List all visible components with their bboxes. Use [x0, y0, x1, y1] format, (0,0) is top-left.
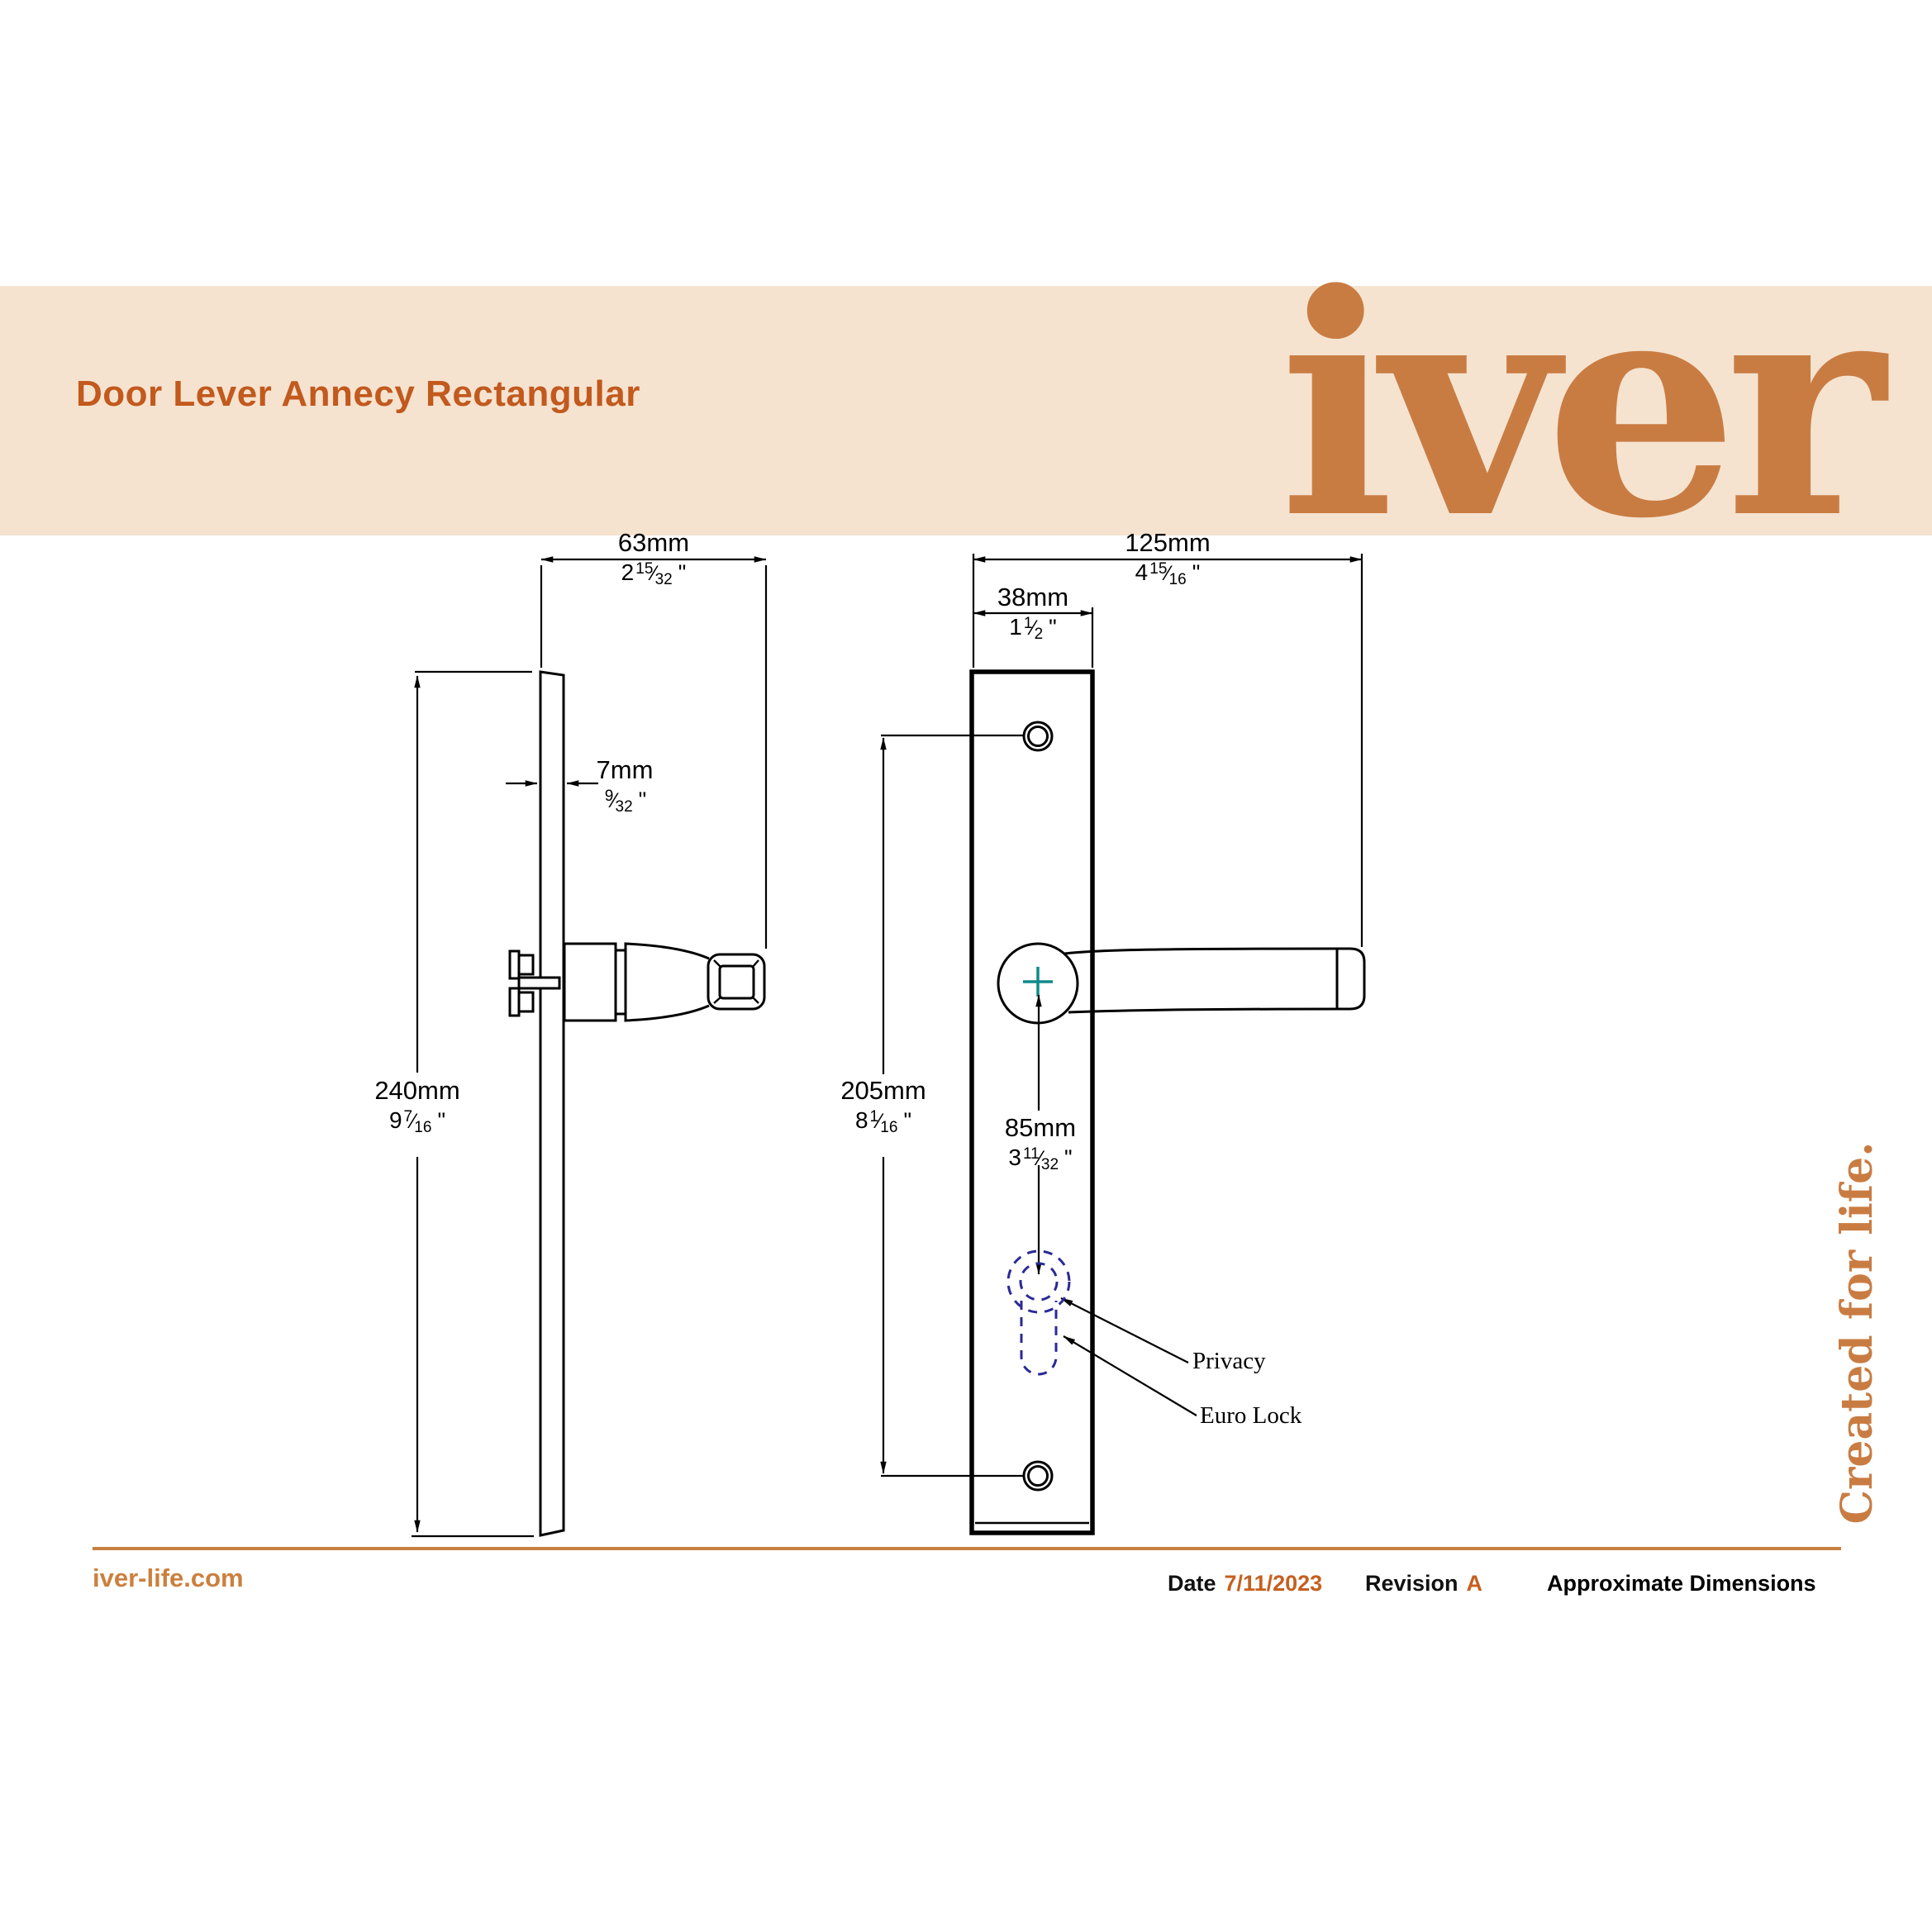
date-label: Date — [1168, 1571, 1216, 1596]
footer-rule — [93, 1547, 1841, 1550]
front-dimensions — [881, 554, 1362, 1476]
side-hub — [564, 944, 616, 1021]
screw-hole-bottom — [1024, 1462, 1052, 1490]
revision-value: A — [1467, 1571, 1483, 1596]
front-lever-arm — [1064, 949, 1364, 1012]
date-value: 7/11/2023 — [1225, 1571, 1323, 1596]
dim-front-plate-width: 38mm 11⁄2" — [997, 583, 1068, 644]
technical-drawing — [0, 0, 1932, 1932]
privacy-leader — [1061, 1298, 1188, 1363]
side-fixings — [510, 951, 559, 1016]
dim-side-thickness: 7mm 9⁄32" — [597, 756, 654, 816]
front-view — [972, 672, 1364, 1533]
side-neck — [616, 950, 626, 1014]
screw-hole-top — [1024, 722, 1052, 750]
side-dimensions — [412, 559, 766, 1536]
revision-field: RevisionA — [1365, 1571, 1482, 1597]
brand-tagline: Created for life. — [1834, 1141, 1882, 1525]
revision-label: Revision — [1365, 1571, 1459, 1596]
centre-cross — [1023, 967, 1053, 997]
spec-sheet-page: Door Lever Annecy Rectangular iver — [0, 0, 1932, 1932]
privacy-label: Privacy — [1192, 1348, 1266, 1375]
euro-cutout — [1021, 1301, 1056, 1374]
front-backplate — [972, 672, 1092, 1533]
euro-lock-label: Euro Lock — [1200, 1402, 1301, 1430]
dim-side-height: 240mm 97⁄16" — [374, 1077, 459, 1137]
side-grip — [626, 944, 709, 1021]
side-backplate — [540, 672, 564, 1535]
dim-front-centres: 205mm 81⁄16" — [840, 1077, 926, 1137]
website-link[interactable]: iver-life.com — [93, 1563, 244, 1593]
dim-front-lock-centre: 85mm 311⁄32" — [1005, 1114, 1076, 1174]
euro-lock-leader — [1064, 1336, 1197, 1416]
dim-front-width: 125mm 415⁄16" — [1125, 529, 1210, 589]
side-spindle — [519, 978, 559, 988]
dimensions-note: Approximate Dimensions — [1547, 1571, 1816, 1597]
dim-side-width: 63mm 215⁄32" — [618, 529, 689, 589]
date-field: Date7/11/2023 — [1168, 1571, 1322, 1597]
